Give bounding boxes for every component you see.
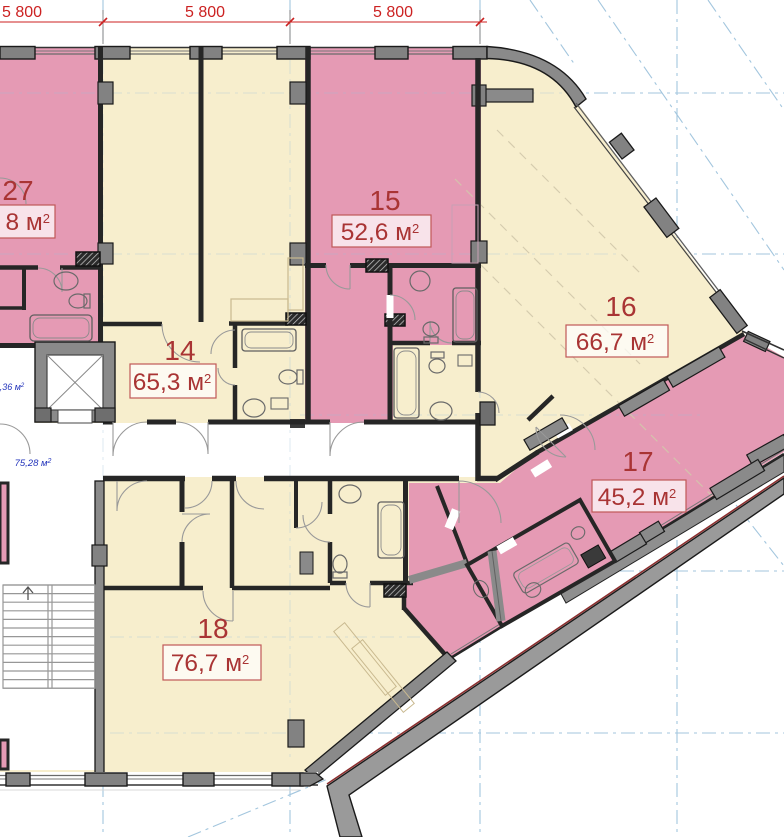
svg-text:17: 17 [622, 446, 653, 477]
svg-text:16: 16 [605, 291, 636, 322]
svg-text:15: 15 [369, 185, 400, 216]
svg-text:66,7 м2: 66,7 м2 [576, 329, 655, 356]
svg-text:5 800: 5 800 [185, 4, 225, 21]
svg-text:5 800: 5 800 [373, 4, 413, 21]
svg-text:45,2 м2: 45,2 м2 [598, 484, 677, 511]
svg-text:52,6 м2: 52,6 м2 [341, 219, 420, 246]
svg-text:14: 14 [164, 335, 195, 366]
svg-text:75,28 м2: 75,28 м2 [15, 458, 52, 469]
svg-text:76,7 м2: 76,7 м2 [171, 650, 250, 677]
svg-text:5 800: 5 800 [2, 4, 42, 21]
svg-text:18: 18 [197, 613, 228, 644]
svg-text:65,3 м2: 65,3 м2 [133, 369, 212, 396]
svg-text:27: 27 [2, 175, 33, 206]
